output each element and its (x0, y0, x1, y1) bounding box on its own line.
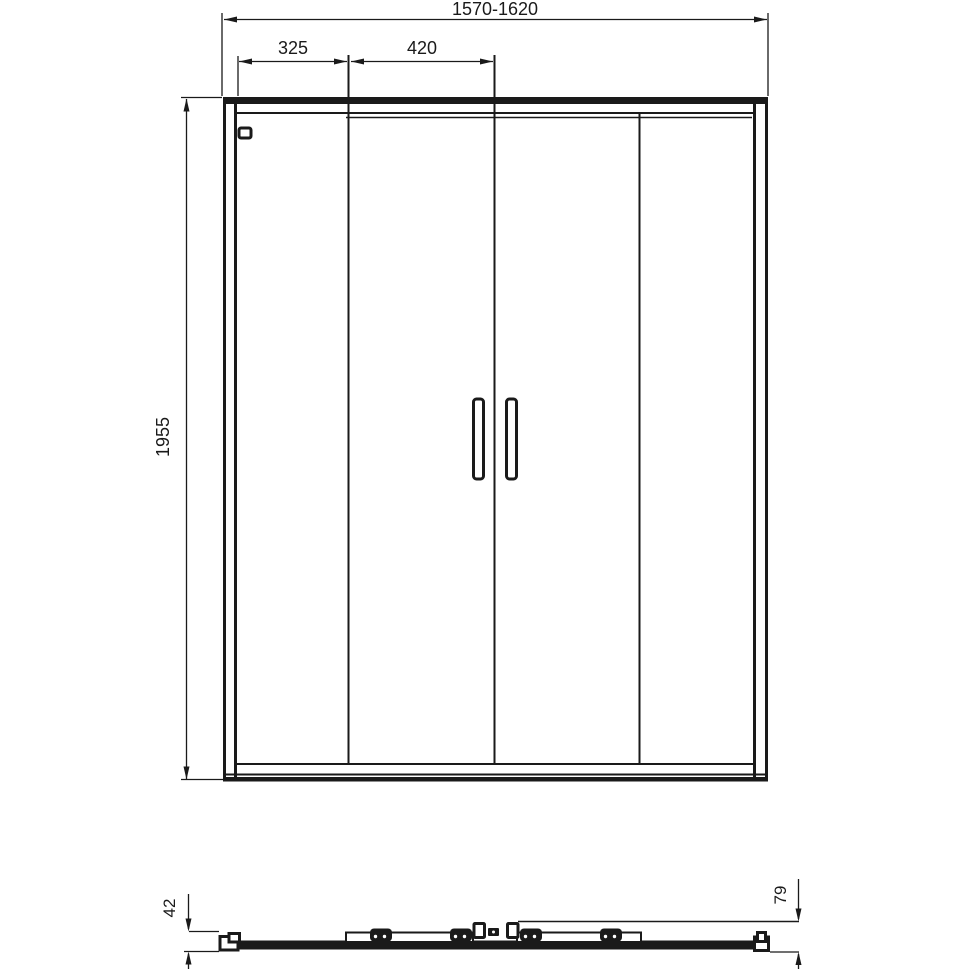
plan-handle-left (474, 924, 485, 938)
plan-handle-right (508, 924, 519, 938)
arrowhead-left (351, 59, 364, 65)
plan-rail-bar (239, 941, 755, 950)
roller-screw (454, 935, 457, 938)
dim-total-width-label: 1570-1620 (452, 0, 538, 19)
dimension-total-depth: 79 (770, 879, 802, 969)
front-view (223, 55, 768, 782)
wall-bracket-clip (239, 128, 251, 138)
dimension-profile-depth: 42 (160, 894, 219, 969)
door-handle-left (474, 399, 484, 479)
door-handle-right (507, 399, 517, 479)
arrowhead-right (334, 59, 347, 65)
clip-screw (492, 931, 495, 934)
arrowhead-left (224, 17, 237, 23)
dim-total-depth-label: 79 (771, 886, 790, 905)
dimension-height: 1955 (153, 98, 223, 780)
roller (520, 929, 542, 942)
arrowhead-up (186, 952, 192, 965)
plan-right-wall-cap-lip (758, 933, 766, 942)
roller-screw (383, 935, 386, 938)
roller-screw (463, 935, 466, 938)
arrowhead-down (796, 909, 802, 922)
arrowhead-right (480, 59, 493, 65)
dim-sliding-panel-label: 420 (407, 38, 437, 58)
roller (600, 929, 622, 942)
arrowhead-up (184, 99, 190, 112)
arrowhead-down (184, 767, 190, 780)
arrowhead-left (239, 59, 252, 65)
plan-left-wall-cap-lip (229, 934, 240, 943)
arrowhead-right (754, 17, 767, 23)
shower-door-technical-drawing: 1570-1620 325 420 1955 (0, 0, 970, 970)
roller-screw (533, 935, 536, 938)
roller-screw (374, 935, 377, 938)
roller-screw (613, 935, 616, 938)
dimension-sliding-panel: 420 (351, 38, 493, 65)
dimension-fixed-panel: 325 (238, 38, 347, 96)
bottom-rail (223, 777, 768, 782)
dim-fixed-panel-label: 325 (278, 38, 308, 58)
plan-view (220, 922, 799, 951)
dim-height-label: 1955 (153, 417, 173, 457)
arrowhead-down (186, 919, 192, 932)
dim-profile-depth-label: 42 (160, 899, 179, 918)
roller (450, 929, 472, 942)
arrowhead-up (796, 952, 802, 965)
roller-screw (604, 935, 607, 938)
roller-screw (524, 935, 527, 938)
technical-drawing-page: 1570-1620 325 420 1955 (0, 0, 970, 970)
roller (370, 929, 392, 942)
